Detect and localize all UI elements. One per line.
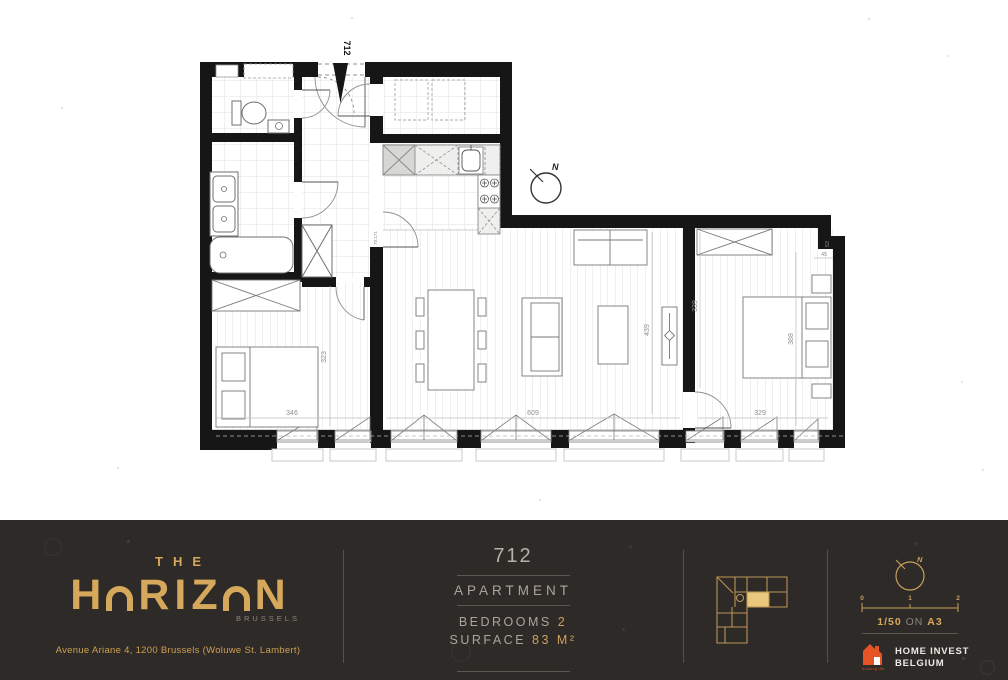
brand-block: THE H R I Z N BRUSSELS Avenue Ariane 4, … xyxy=(28,554,328,656)
brand-letter: H xyxy=(70,580,101,611)
publisher-name: HOME INVEST BELGIUM xyxy=(895,646,969,670)
footer-divider xyxy=(827,550,828,663)
brand-letter: I xyxy=(174,580,186,611)
home-invest-logo: housing life HOME INVEST BELGIUM xyxy=(860,642,969,671)
svg-text:388: 388 xyxy=(788,333,795,345)
unit-type: APARTMENT xyxy=(343,583,683,598)
brand-horizon-logo: H R I Z N xyxy=(28,578,328,611)
surface-label: SURFACE xyxy=(450,633,527,647)
svg-text:339: 339 xyxy=(692,300,699,312)
scale-bar: 0 1 2 xyxy=(843,592,977,616)
brand-letter: R xyxy=(138,580,169,611)
bedrooms-label: BEDROOMS xyxy=(459,615,552,629)
brand-letter: N xyxy=(255,580,286,611)
svg-text:45: 45 xyxy=(821,252,827,258)
brand-letter: Z xyxy=(191,580,217,611)
divider-line xyxy=(457,671,570,672)
brand-the: THE xyxy=(28,554,328,569)
svg-text:329: 329 xyxy=(754,410,766,417)
letter-o-arch xyxy=(223,586,250,611)
publisher-tagline: housing life xyxy=(860,667,887,671)
north-indicator-footer: N xyxy=(843,550,977,596)
key-plan xyxy=(705,565,805,650)
divider-line xyxy=(457,575,570,576)
svg-text:2: 2 xyxy=(956,595,960,602)
meta-column: N 0 1 2 1/50 ON A3 xyxy=(843,520,983,680)
svg-text:52: 52 xyxy=(825,241,831,247)
divider-line xyxy=(457,605,570,606)
plan-north-label: N xyxy=(552,162,559,172)
unit-specs: BEDROOMS 2 SURFACE 83 M² xyxy=(343,613,683,649)
floor-plan: 346 609 329 323 439 339 388 52 45 70.171… xyxy=(0,0,1008,520)
unit-info: 712 APARTMENT BEDROOMS 2 SURFACE 83 M² xyxy=(343,545,683,679)
scale-ratio-value: 1/50 xyxy=(877,616,901,628)
footer-divider xyxy=(683,550,684,663)
house-icon xyxy=(860,642,887,666)
hall-door-dim: 70.171 xyxy=(373,231,378,245)
plan-sheet: 346 609 329 323 439 339 388 52 45 70.171… xyxy=(0,0,1008,680)
bedrooms-value: 2 xyxy=(558,615,567,629)
scale-paper: A3 xyxy=(927,616,942,628)
svg-text:439: 439 xyxy=(644,324,651,336)
surface-value: 83 M² xyxy=(532,633,576,647)
scale-on: ON xyxy=(906,616,924,628)
entry-unit-number: 712 xyxy=(342,40,352,55)
meta-divider xyxy=(862,633,958,634)
svg-text:0: 0 xyxy=(860,595,864,602)
north-indicator-plan: N xyxy=(530,162,561,203)
unit-number: 712 xyxy=(343,545,683,568)
brand-address: Avenue Ariane 4, 1200 Brussels (Woluwe S… xyxy=(28,645,328,656)
footer-north-label: N xyxy=(917,555,923,564)
svg-text:609: 609 xyxy=(527,410,539,417)
letter-o-arch xyxy=(106,586,133,611)
footer: THE H R I Z N BRUSSELS Avenue Ariane 4, … xyxy=(0,520,1008,680)
scale-ratio: 1/50 ON A3 xyxy=(843,616,977,628)
footer-speck xyxy=(127,540,130,543)
svg-text:1: 1 xyxy=(908,595,912,602)
svg-text:346: 346 xyxy=(286,410,298,417)
svg-text:323: 323 xyxy=(321,351,328,363)
